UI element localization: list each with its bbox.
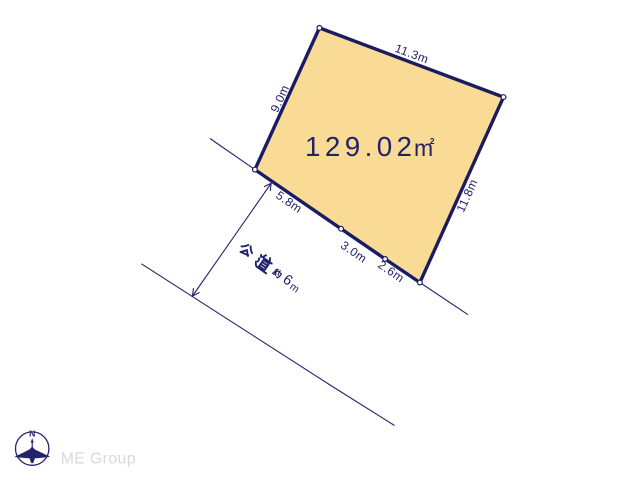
- svg-text:N: N: [29, 429, 35, 439]
- svg-text:ME Group: ME Group: [61, 450, 136, 467]
- svg-text:2: 2: [430, 136, 435, 146]
- svg-text:129.02: 129.02: [305, 131, 416, 162]
